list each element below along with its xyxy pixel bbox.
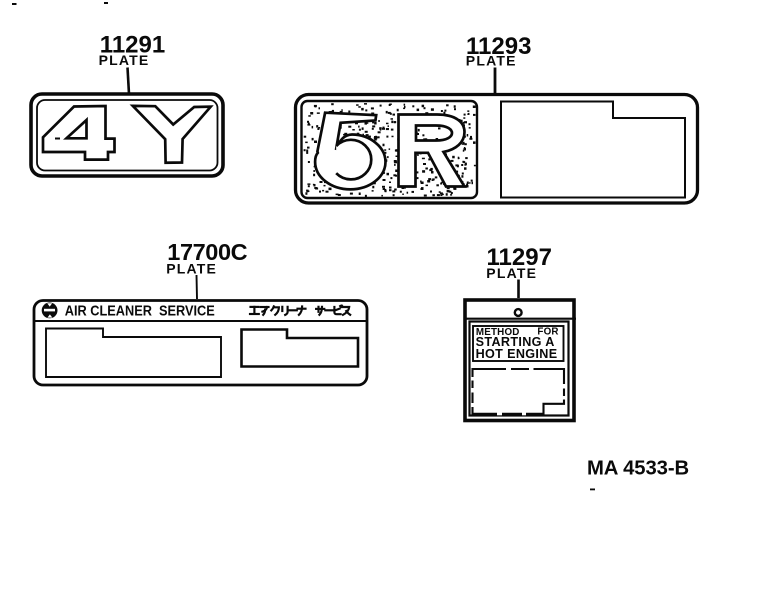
svg-text:MA 4533-B: MA 4533-B bbox=[587, 457, 689, 479]
svg-text:PLATE: PLATE bbox=[166, 261, 217, 277]
svg-text:PLATE: PLATE bbox=[486, 265, 537, 281]
svg-text:PLATE: PLATE bbox=[99, 52, 150, 68]
svg-text:HOT ENGINE: HOT ENGINE bbox=[476, 347, 558, 361]
svg-text:PLATE: PLATE bbox=[466, 53, 517, 69]
svg-text:AIR CLEANER SERVICE: AIR CLEANER SERVICE bbox=[65, 302, 215, 319]
